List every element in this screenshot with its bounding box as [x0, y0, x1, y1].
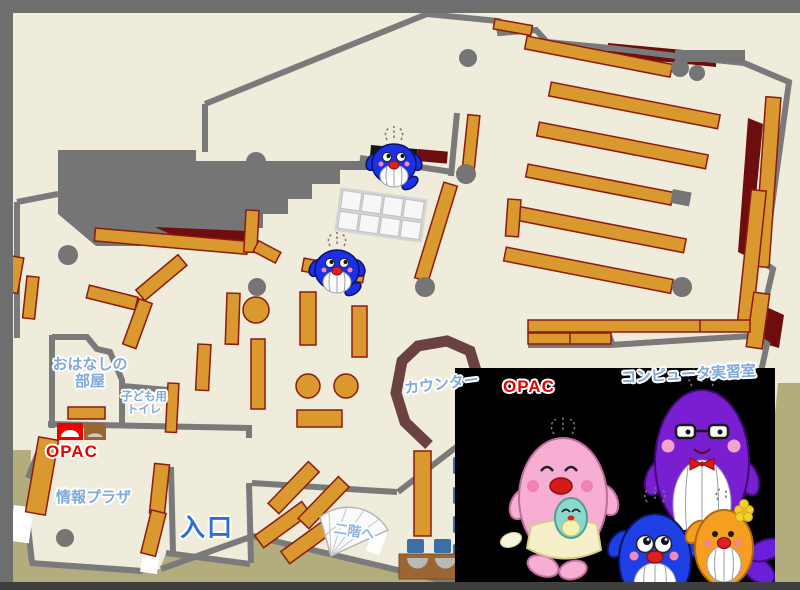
label-opac-left: OPAC: [46, 442, 98, 462]
label-kids-toilet: 子ども用 トイレ: [106, 391, 182, 417]
label-info-plaza: 情報プラザ: [56, 489, 131, 506]
pillar: [459, 49, 477, 67]
label-opac-right: OPAC: [503, 377, 555, 397]
round-table: [296, 374, 320, 398]
bookshelf: [68, 407, 105, 419]
baby-whale: [555, 498, 587, 538]
mascot-family-illustration: [455, 366, 787, 590]
frame-bottom: [0, 582, 800, 590]
bookshelf: [352, 306, 367, 357]
frame-left: [0, 0, 13, 590]
pillar: [689, 65, 705, 81]
pillar: [58, 245, 78, 265]
pillar: [246, 152, 266, 172]
pillar: [248, 278, 266, 296]
label-story-room-line1: おはなしの: [40, 356, 140, 373]
label-entrance: 入口: [180, 514, 234, 543]
label-kids-toilet-line1: 子ども用: [106, 391, 182, 404]
label-story-room-line2: 部屋: [40, 373, 140, 390]
round-table: [334, 374, 358, 398]
wall-bar-top: [675, 50, 745, 62]
chair: [434, 539, 451, 553]
opac-terminal-left: [57, 423, 106, 440]
bookshelf: [251, 339, 265, 409]
bookshelf: [297, 410, 342, 427]
pillar: [671, 59, 689, 77]
bookshelf: [225, 293, 240, 344]
pillar: [56, 529, 74, 547]
pillar: [672, 277, 692, 297]
label-story-room: おはなしの 部屋: [40, 356, 140, 391]
bookshelf: [196, 344, 211, 391]
chair: [407, 539, 424, 553]
pillar: [415, 277, 435, 297]
opac-terminal: [84, 423, 106, 440]
computer-desk: [399, 554, 462, 579]
round-table: [243, 297, 269, 323]
bookshelf: [505, 199, 521, 237]
label-kids-toilet-line2: トイレ: [106, 404, 182, 417]
bookshelf: [414, 451, 431, 536]
bookshelf: [528, 320, 750, 332]
library-floor-map: おはなしの 部屋 子ども用 トイレ OPAC 情報プラザ 入口 カウンター OP…: [0, 0, 800, 590]
frame-top: [0, 0, 800, 13]
bookshelf: [300, 292, 316, 345]
pillar: [456, 164, 476, 184]
